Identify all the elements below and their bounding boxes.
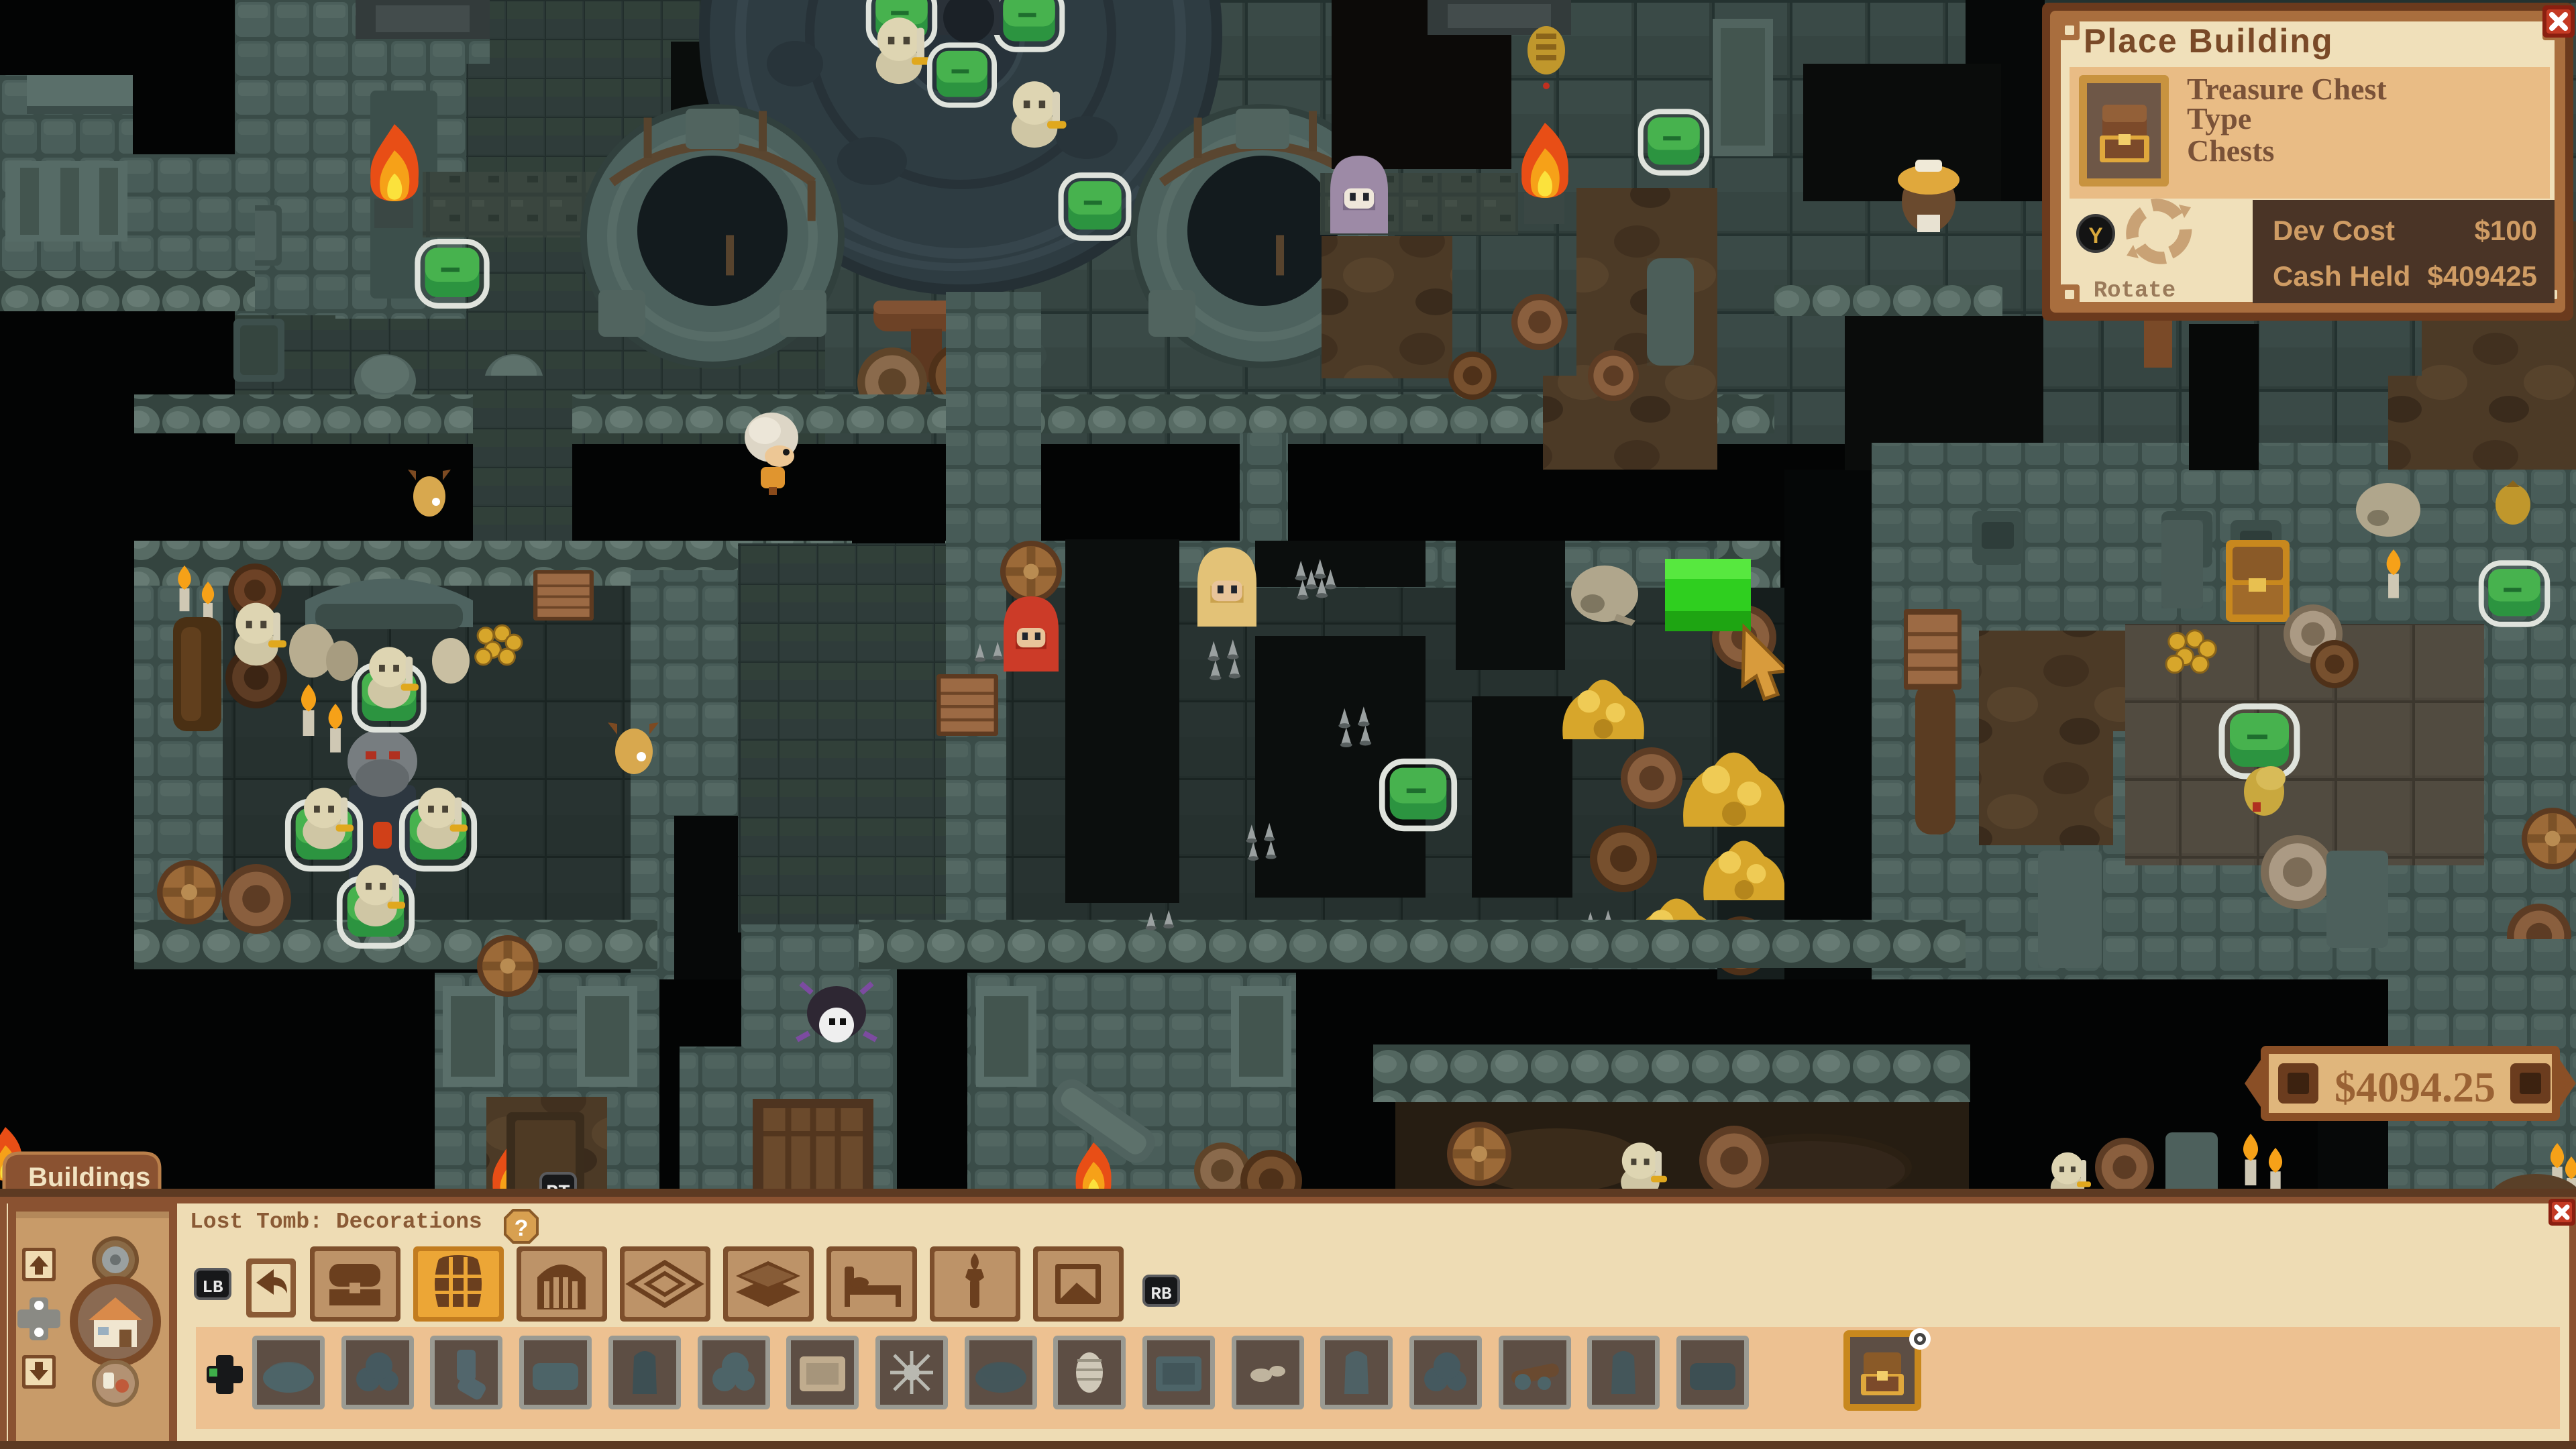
svg-text:RB: RB (1150, 1284, 1172, 1304)
svg-text:Rotate: Rotate (2094, 278, 2176, 304)
svg-text:Cash Held: Cash Held (2273, 260, 2410, 292)
svg-text:Lost Tomb: Decorations: Lost Tomb: Decorations (190, 1210, 482, 1234)
svg-text:Y: Y (2088, 223, 2102, 248)
svg-text:?: ? (515, 1216, 529, 1241)
svg-text:Chests: Chests (2187, 133, 2274, 168)
svg-text:Buildings: Buildings (28, 1163, 150, 1192)
svg-text:LB: LB (202, 1277, 223, 1297)
svg-text:$409425: $409425 (2427, 260, 2537, 292)
svg-text:$100: $100 (2475, 215, 2537, 246)
svg-text:$4094.25: $4094.25 (2334, 1063, 2495, 1111)
svg-text:Dev Cost: Dev Cost (2273, 215, 2395, 246)
svg-text:Place Building: Place Building (2084, 22, 2334, 60)
svg-text:Type: Type (2187, 101, 2251, 136)
